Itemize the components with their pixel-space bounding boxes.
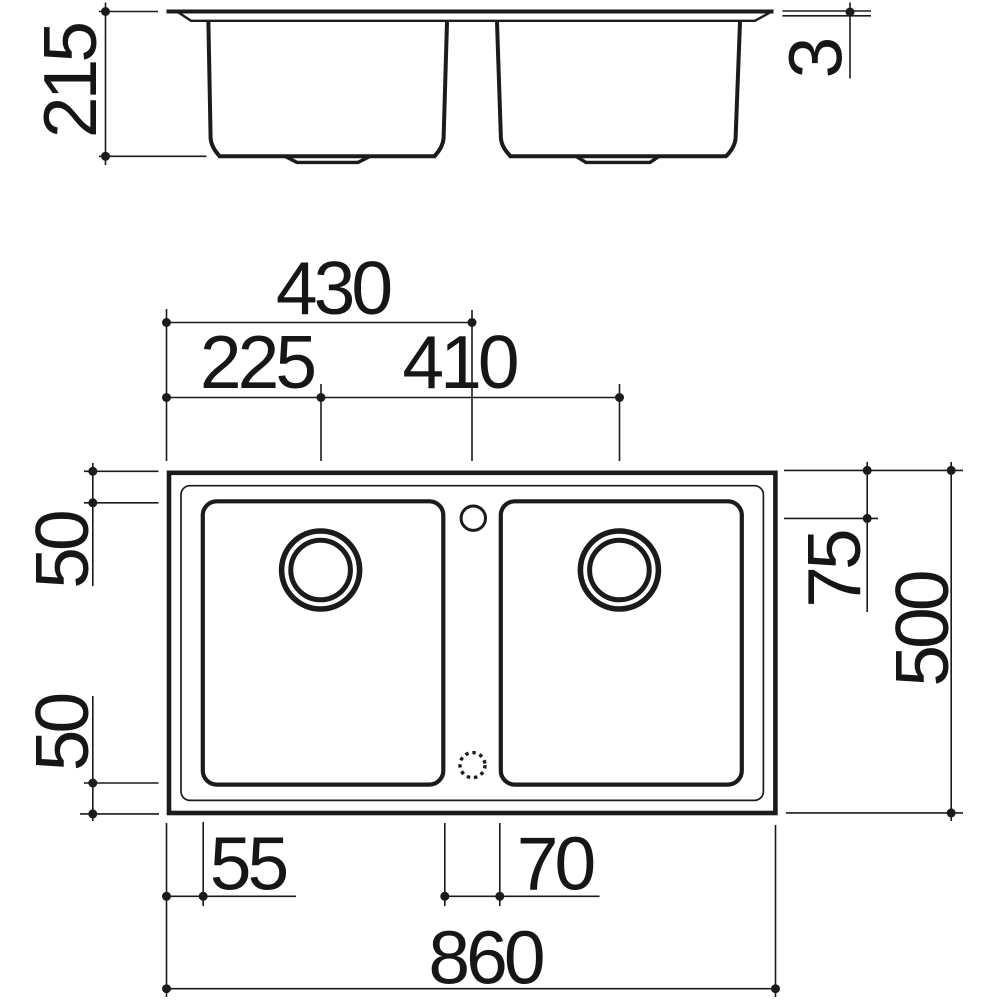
svg-text:860: 860: [428, 916, 542, 1000]
svg-text:70: 70: [517, 822, 594, 906]
svg-text:225: 225: [200, 320, 314, 404]
svg-text:500: 500: [880, 572, 964, 686]
svg-text:215: 215: [28, 24, 112, 138]
svg-text:430: 430: [276, 246, 390, 330]
svg-text:410: 410: [402, 320, 516, 404]
svg-text:50: 50: [20, 512, 104, 589]
svg-text:50: 50: [20, 695, 104, 772]
svg-text:75: 75: [792, 531, 876, 608]
svg-text:55: 55: [210, 822, 287, 906]
svg-text:3: 3: [774, 39, 858, 78]
